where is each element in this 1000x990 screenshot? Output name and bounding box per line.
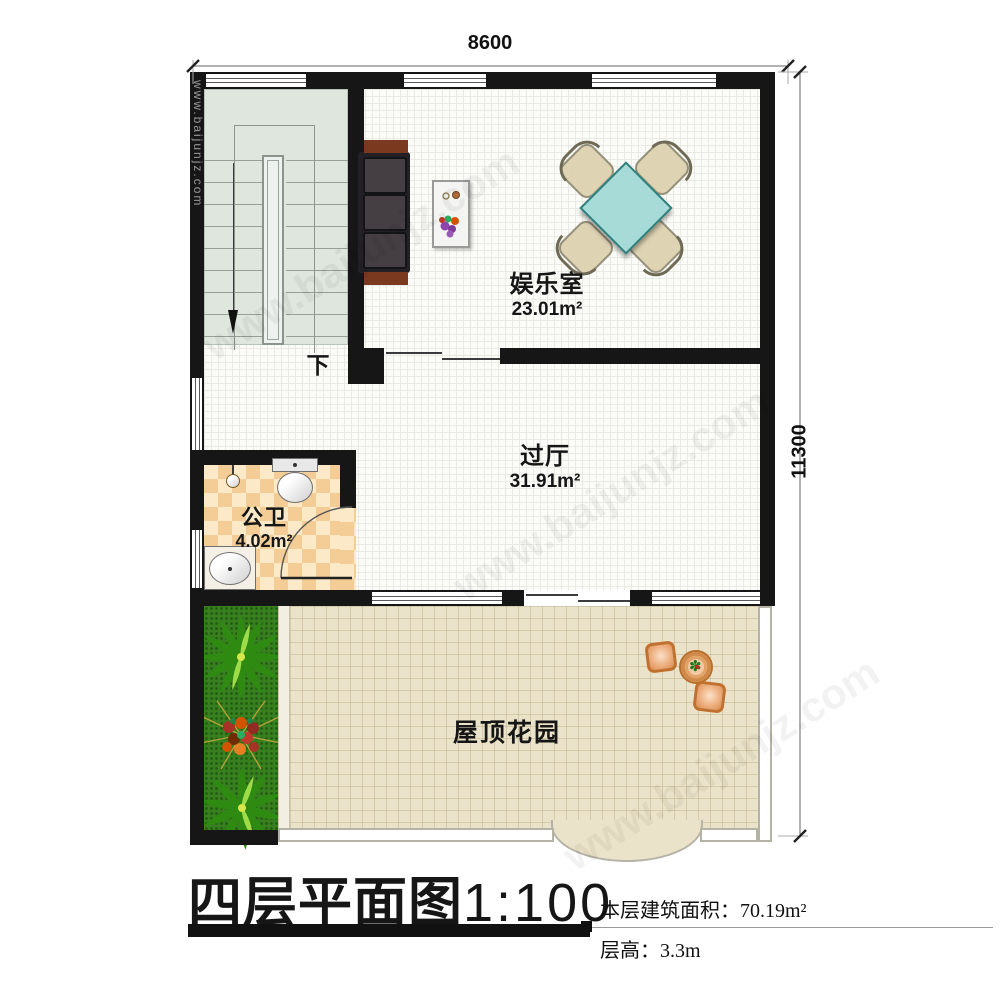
floor-area-value: 70.19m² bbox=[740, 900, 807, 922]
sofa-cushion bbox=[363, 232, 407, 269]
floor-height-row: 层高：3.3m bbox=[600, 934, 807, 963]
room-label-roof-garden: 屋顶花园 bbox=[427, 719, 587, 747]
room-label-entertainment: 娱乐室 23.01m² bbox=[467, 272, 627, 320]
palm-plant-icon bbox=[196, 612, 286, 702]
garden-chair bbox=[644, 640, 677, 673]
grass-strip bbox=[204, 606, 278, 830]
floor-height-value: 3.3m bbox=[660, 940, 701, 962]
wall-segment bbox=[760, 590, 775, 606]
wall-segment bbox=[190, 72, 204, 378]
toilet-bowl bbox=[277, 472, 313, 503]
sliding-door bbox=[386, 352, 442, 354]
stair-outline bbox=[234, 125, 314, 126]
wall-pier bbox=[502, 590, 524, 606]
window bbox=[190, 530, 204, 588]
window bbox=[652, 590, 760, 606]
floor-info: 本层建筑面积：70.19m² 层高：3.3m bbox=[600, 894, 807, 963]
title-underline-bar bbox=[188, 924, 590, 937]
room-area: 31.91m² bbox=[465, 471, 625, 492]
room-name: 娱乐室 bbox=[467, 272, 627, 299]
wall-segment bbox=[340, 465, 356, 508]
parapet-right bbox=[758, 606, 772, 842]
wall-segment bbox=[760, 72, 775, 606]
window bbox=[592, 72, 716, 89]
wall-segment bbox=[486, 72, 592, 89]
stair-down-label: 下 bbox=[300, 346, 336, 380]
wall-pier bbox=[630, 590, 652, 606]
sliding-door bbox=[526, 594, 578, 596]
sliding-door bbox=[442, 358, 500, 360]
stair-down-arrow-icon bbox=[228, 310, 238, 334]
garden-chair bbox=[692, 680, 726, 714]
stair-outline bbox=[314, 125, 315, 353]
floor-area-label: 本层建筑面积： bbox=[600, 900, 740, 922]
shower-head bbox=[226, 474, 240, 488]
sofa bbox=[358, 152, 410, 273]
room-name: 屋顶花园 bbox=[427, 719, 587, 747]
dimension-width-label: 8600 bbox=[440, 32, 540, 55]
wall-pier bbox=[348, 348, 384, 384]
wall-segment bbox=[190, 590, 372, 606]
room-name: 公卫 bbox=[214, 506, 314, 531]
floor-plan-canvas: ✽ 8600 11300 娱乐室 23.01m² 过厅 31.91m² 公卫 4… bbox=[0, 0, 1000, 990]
wall-segment bbox=[190, 830, 278, 845]
window bbox=[190, 378, 204, 452]
sofa-cushion bbox=[363, 194, 407, 231]
stair-direction-line bbox=[233, 163, 234, 311]
sink-drain bbox=[228, 567, 232, 571]
wall-segment bbox=[306, 72, 404, 89]
parapet-bottom-right bbox=[700, 828, 758, 842]
table-decor-icon bbox=[434, 182, 468, 246]
bathroom-floor-door-strip bbox=[340, 508, 356, 590]
room-name: 过厅 bbox=[465, 444, 625, 471]
garden-bay-curve bbox=[551, 820, 703, 862]
wall-segment bbox=[500, 348, 760, 364]
stair-steps-right bbox=[286, 160, 348, 342]
sofa-wood-trim bbox=[364, 140, 408, 153]
window bbox=[206, 72, 306, 89]
sofa-cushion bbox=[363, 157, 407, 194]
floor-height-label: 层高： bbox=[600, 940, 660, 962]
floor-area-row: 本层建筑面积：70.19m² bbox=[600, 894, 807, 923]
coffee-table bbox=[432, 180, 470, 248]
wall-segment bbox=[190, 588, 204, 845]
dimension-height-label: 11300 bbox=[789, 420, 812, 484]
toilet-button bbox=[293, 463, 297, 467]
room-label-bathroom: 公卫 4.02m² bbox=[214, 506, 314, 551]
window bbox=[404, 72, 486, 89]
planter-curb bbox=[278, 606, 290, 828]
stair-rail bbox=[262, 155, 284, 345]
roof-garden-floor bbox=[290, 606, 758, 828]
sliding-door bbox=[578, 600, 630, 602]
potted-plant-icon: ✽ bbox=[689, 659, 702, 674]
info-divider-square bbox=[581, 921, 592, 932]
room-area: 4.02m² bbox=[214, 531, 314, 551]
room-label-hall: 过厅 31.91m² bbox=[465, 444, 625, 492]
parapet-bottom-left bbox=[278, 828, 554, 842]
room-area: 23.01m² bbox=[467, 299, 627, 320]
sofa-wood-trim bbox=[364, 272, 408, 285]
window bbox=[372, 590, 502, 606]
